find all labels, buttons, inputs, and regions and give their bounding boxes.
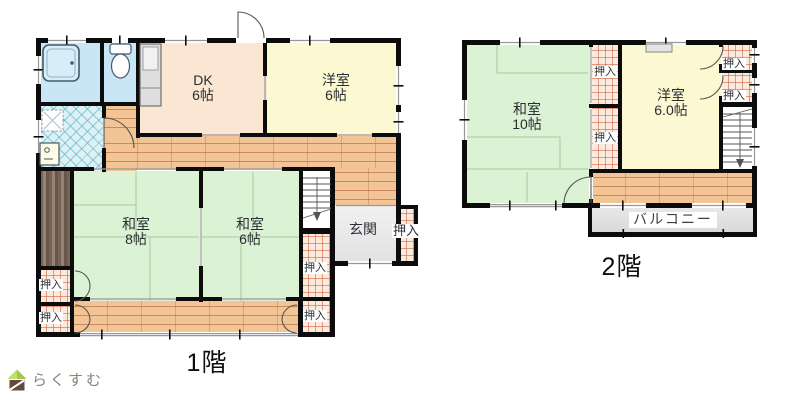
closet-label-genkan-1f: 押入 xyxy=(392,224,420,238)
closet-label-b-2f: 押入 xyxy=(593,132,617,144)
room-label-western-2f: 洋室 6.0帖 xyxy=(636,88,706,119)
rakusumu-logo: らくすむ xyxy=(7,369,104,391)
floor-plan-image: DK 6帖 洋室 6帖 和室 8帖 和室 6帖 玄関 押入 押入 押入 押入 押… xyxy=(0,0,800,400)
closet-label-c-2f: 押入 xyxy=(722,58,746,70)
stairs-1f xyxy=(303,172,331,229)
floor2-title: 2階 xyxy=(572,247,672,283)
toilet-room-1f xyxy=(104,40,137,105)
hallway-east-1f xyxy=(335,168,398,208)
stairs-2f xyxy=(722,107,753,170)
logo-text: らくすむ xyxy=(32,371,104,391)
washroom-1f xyxy=(38,106,103,172)
closet-label-midright-1f: 押入 xyxy=(303,262,327,274)
room-label-dk-1f: DK 6帖 xyxy=(173,73,233,104)
room-label-washitsu10-2f: 和室 10帖 xyxy=(492,102,562,133)
closet-label-left2-1f: 押入 xyxy=(39,312,63,324)
house-icon xyxy=(7,369,27,391)
floor1-title: 1階 xyxy=(157,343,257,379)
room-label-western-1f: 洋室 6帖 xyxy=(306,73,366,104)
closet-label-d-2f: 押入 xyxy=(722,90,746,102)
tokonoma-1f xyxy=(40,171,71,267)
balcony-label-2f: バルコニー xyxy=(629,212,717,228)
hallway-1f xyxy=(104,136,400,170)
closet-label-botright-1f: 押入 xyxy=(303,310,327,322)
room-label-washitsu6-1f: 和室 6帖 xyxy=(220,217,280,248)
room-label-genkan-1f: 玄関 xyxy=(334,222,392,237)
room-label-washitsu8-1f: 和室 8帖 xyxy=(106,217,166,248)
closet-label-left1-1f: 押入 xyxy=(39,279,63,291)
closet-label-a-2f: 押入 xyxy=(593,66,617,78)
veranda-1f xyxy=(74,301,299,333)
bathroom-1f xyxy=(38,40,102,105)
hallway-2f xyxy=(592,172,754,204)
